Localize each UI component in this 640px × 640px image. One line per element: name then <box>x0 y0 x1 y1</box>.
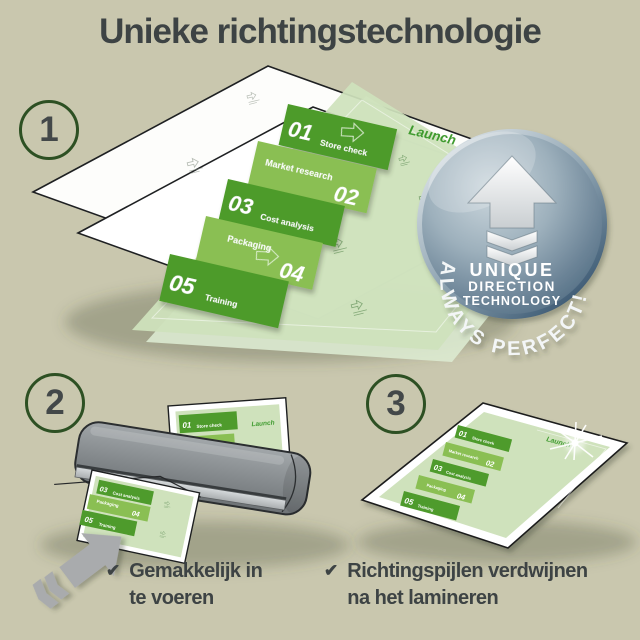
checklist-item-arrows-disappear-text: Richtingspijlen verdwijnen na het lamine… <box>347 558 587 612</box>
checklist-item-arrows-disappear: ✔ Richtingspijlen verdwijnen na het lami… <box>324 558 588 612</box>
step-number-1: 1 <box>39 110 58 150</box>
check-icon: ✔ <box>324 561 338 581</box>
checklist-line: Gemakkelijk in <box>129 558 262 585</box>
badge-line2: DIRECTION <box>468 279 556 294</box>
step-circle-2: 2 <box>25 373 85 433</box>
step-circle-1: 1 <box>19 100 79 160</box>
badge-line1: UNIQUE <box>469 260 554 280</box>
badge-line3: TECHNOLOGY <box>463 294 561 308</box>
infographic: 01 Store check Market research 02 03 Cos… <box>0 0 640 640</box>
step-number-3: 3 <box>386 384 405 424</box>
page-title: Unieke richtingstechnologie <box>0 12 640 52</box>
check-icon: ✔ <box>106 561 120 581</box>
step-circle-3: 3 <box>366 374 426 434</box>
checklist-line: na het lamineren <box>347 585 587 612</box>
checklist-item-easy-feed: ✔ Gemakkelijk in te voeren <box>106 558 262 612</box>
infeed-band-01-number: 01 <box>182 420 192 430</box>
checklist-item-easy-feed-text: Gemakkelijk in te voeren <box>129 558 262 612</box>
step-number-2: 2 <box>45 383 64 423</box>
infographic-scenes: 01 Store check Market research 02 03 Cos… <box>0 0 640 640</box>
checklist-line: te voeren <box>129 585 262 612</box>
checklist-line: Richtingspijlen verdwijnen <box>347 558 587 585</box>
